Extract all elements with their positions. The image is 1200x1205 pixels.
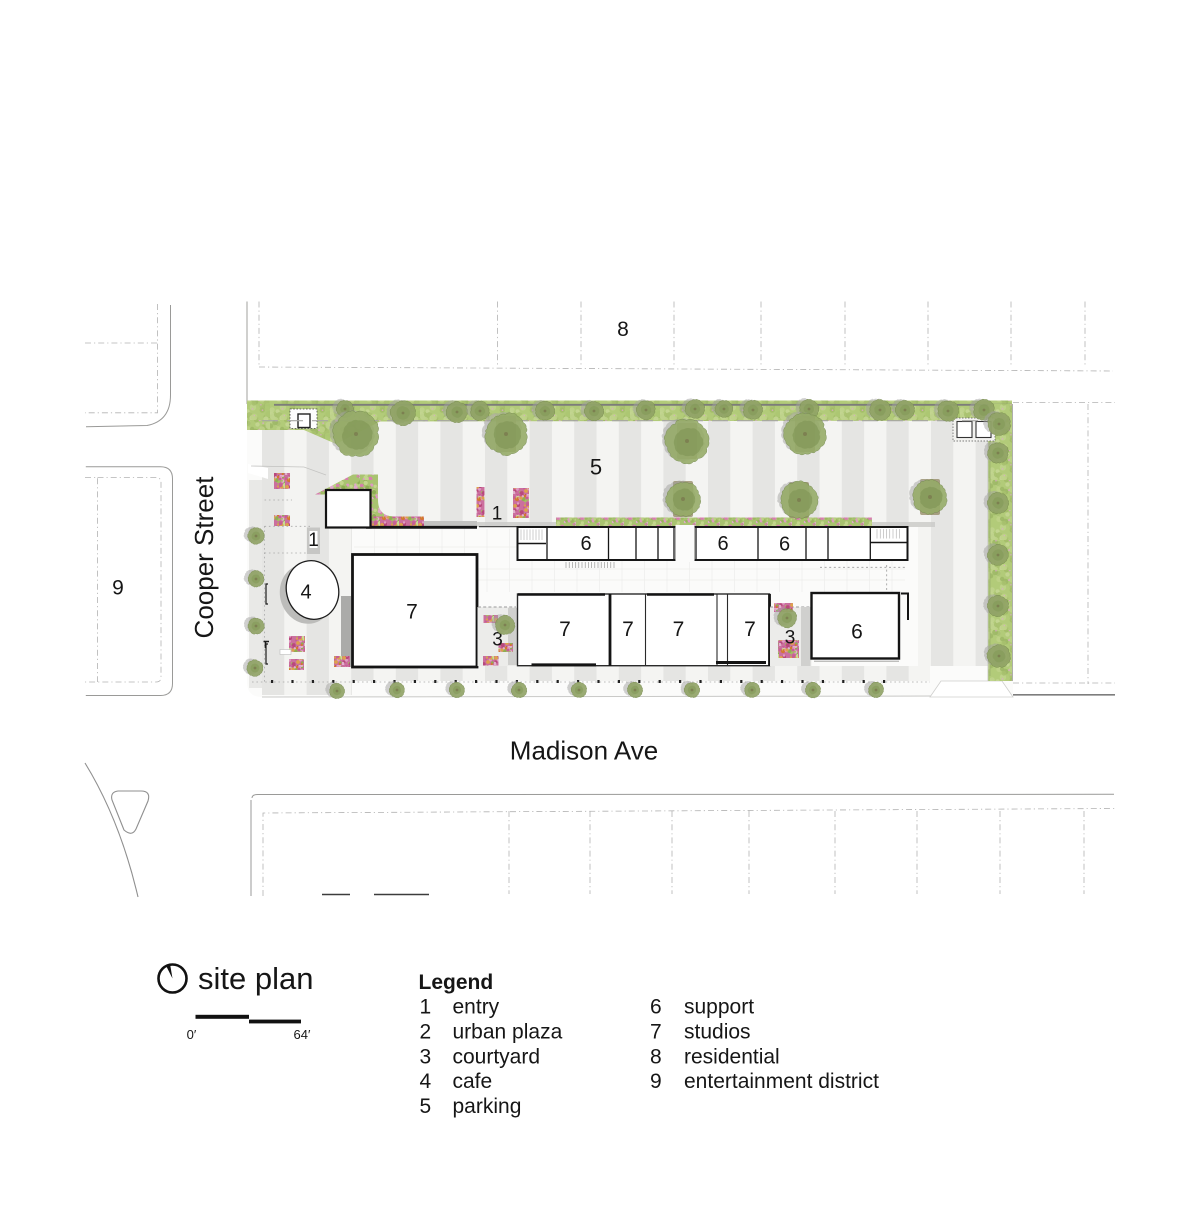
- svg-text:7: 7: [650, 1021, 662, 1044]
- svg-text:5: 5: [420, 1095, 432, 1118]
- svg-text:6: 6: [779, 534, 790, 556]
- svg-text:Cooper Street: Cooper Street: [189, 476, 219, 639]
- svg-text:cafe: cafe: [453, 1070, 493, 1093]
- svg-text:1: 1: [308, 530, 319, 551]
- svg-text:6: 6: [851, 621, 863, 644]
- svg-text:3: 3: [420, 1045, 432, 1068]
- svg-text:64′: 64′: [294, 1027, 311, 1042]
- svg-text:3: 3: [785, 628, 796, 649]
- svg-text:urban plaza: urban plaza: [453, 1021, 563, 1044]
- svg-text:entry: entry: [453, 996, 500, 1019]
- svg-text:7: 7: [406, 601, 418, 624]
- svg-text:8: 8: [650, 1045, 662, 1068]
- svg-text:residential: residential: [684, 1045, 780, 1068]
- svg-text:Legend: Legend: [419, 971, 494, 994]
- svg-text:site plan: site plan: [198, 961, 313, 996]
- svg-text:courtyard: courtyard: [453, 1045, 541, 1068]
- svg-text:6: 6: [650, 996, 662, 1019]
- svg-text:7: 7: [559, 618, 571, 641]
- svg-text:8: 8: [617, 318, 629, 341]
- svg-text:Madison Ave: Madison Ave: [510, 736, 658, 766]
- svg-text:studios: studios: [684, 1021, 751, 1044]
- svg-text:entertainment district: entertainment district: [684, 1070, 879, 1093]
- svg-text:1: 1: [492, 504, 503, 525]
- svg-text:1: 1: [420, 996, 432, 1019]
- svg-text:2: 2: [420, 1021, 432, 1044]
- svg-text:0′: 0′: [187, 1027, 197, 1042]
- svg-text:support: support: [684, 996, 754, 1019]
- svg-text:4: 4: [300, 582, 311, 604]
- svg-text:9: 9: [650, 1070, 662, 1093]
- svg-text:5: 5: [590, 455, 602, 480]
- svg-text:4: 4: [420, 1070, 432, 1093]
- svg-text:6: 6: [717, 533, 728, 555]
- svg-text:6: 6: [580, 533, 591, 555]
- svg-text:9: 9: [112, 577, 124, 600]
- svg-text:parking: parking: [453, 1095, 522, 1118]
- svg-text:7: 7: [673, 618, 685, 641]
- svg-text:7: 7: [744, 618, 756, 641]
- svg-text:7: 7: [622, 618, 634, 641]
